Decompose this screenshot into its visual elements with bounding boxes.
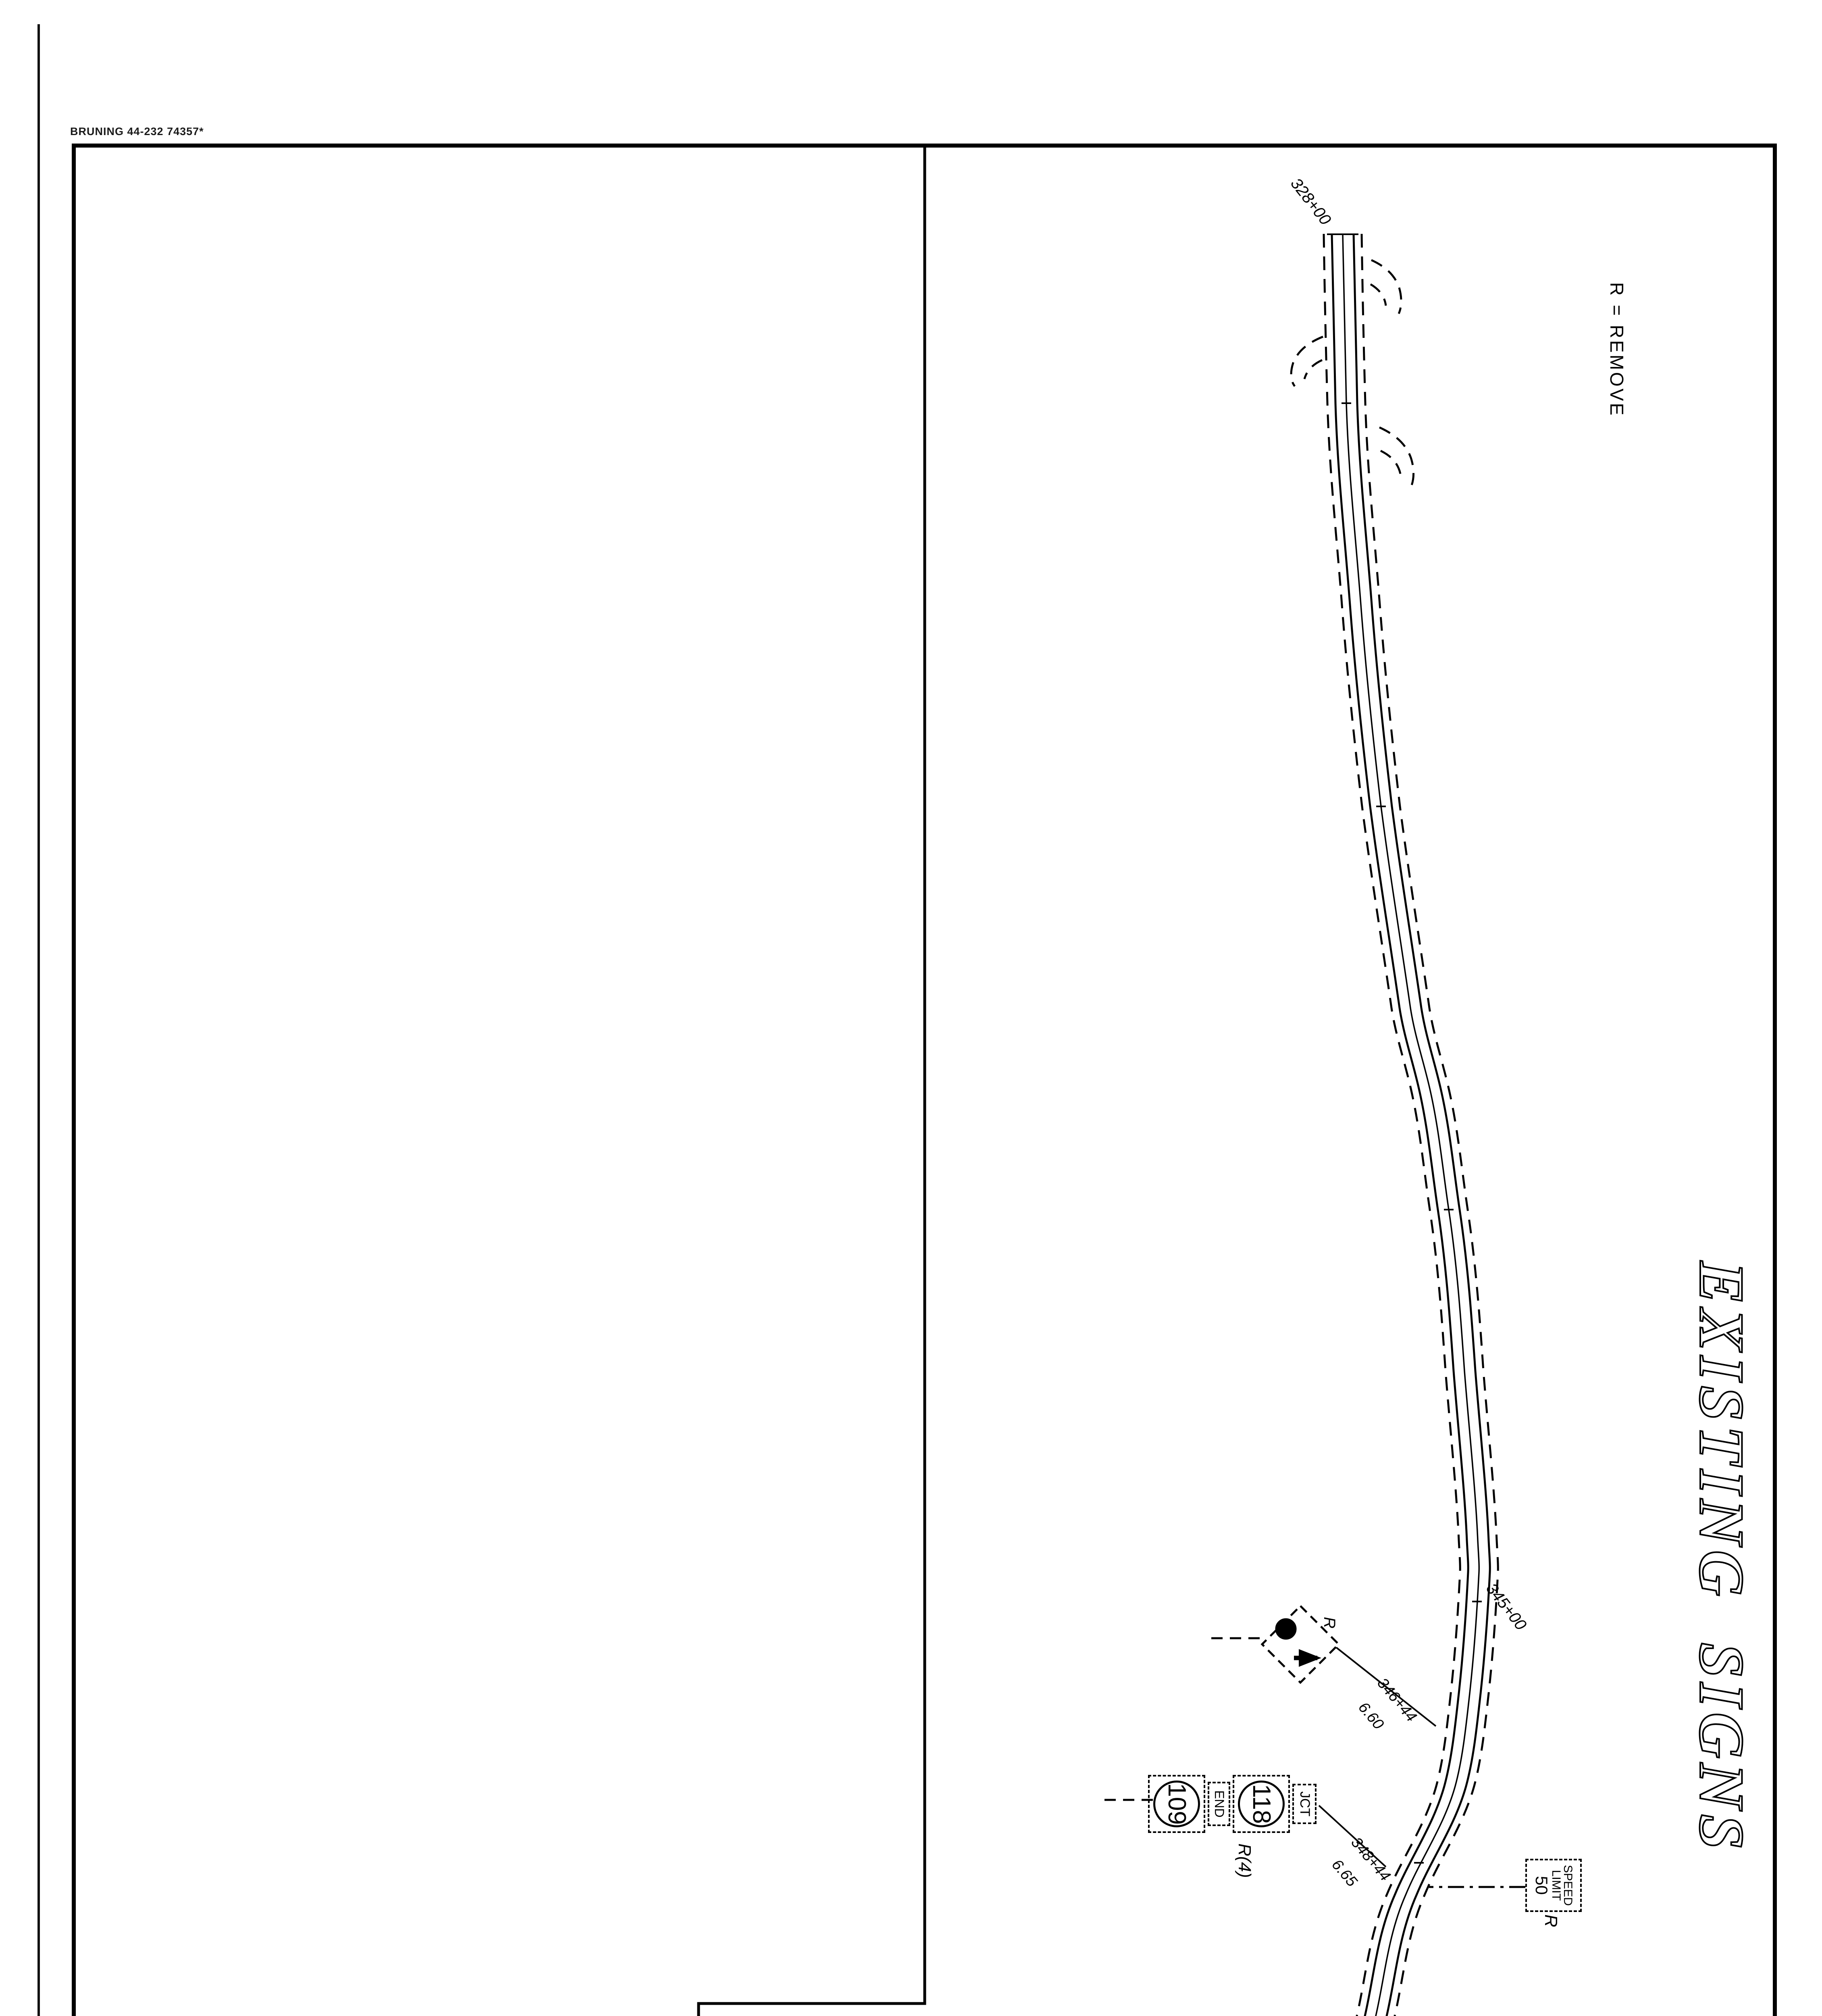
svg-text:6.65: 6.65	[1328, 1856, 1360, 1890]
svg-text:R: R	[1321, 1617, 1338, 1629]
svg-text:328+00: 328+00	[1287, 175, 1335, 228]
svg-text:6.60: 6.60	[1355, 1699, 1387, 1733]
svg-text:345+00: 345+00	[1483, 1580, 1530, 1633]
